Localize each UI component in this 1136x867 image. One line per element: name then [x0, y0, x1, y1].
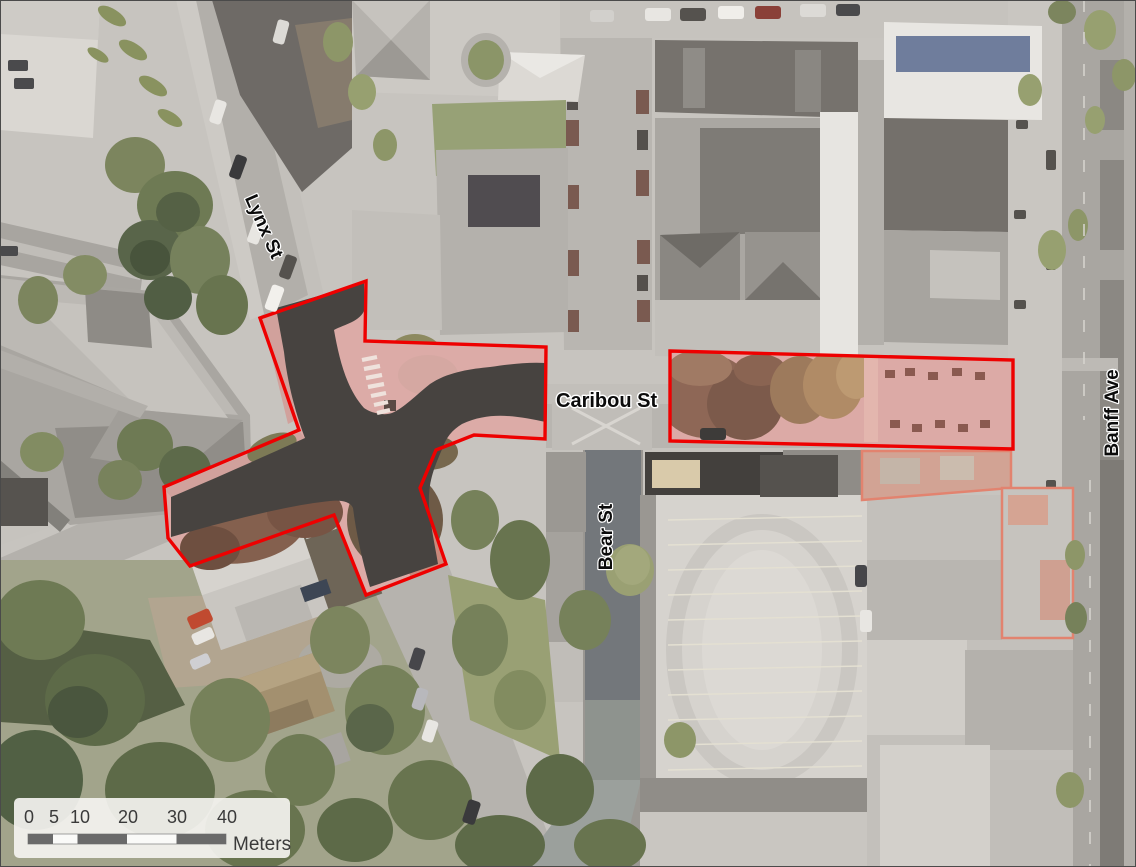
svg-text:Banff Ave: Banff Ave: [1102, 369, 1123, 456]
svg-text:Meters: Meters: [233, 834, 291, 855]
svg-text:Bear St: Bear St: [596, 503, 617, 570]
svg-text:0: 0: [24, 807, 34, 827]
svg-text:40: 40: [217, 807, 237, 827]
svg-text:30: 30: [167, 807, 187, 827]
svg-text:5: 5: [49, 807, 59, 827]
svg-text:20: 20: [118, 807, 138, 827]
svg-text:Caribou St: Caribou St: [556, 390, 657, 412]
svg-text:10: 10: [70, 807, 90, 827]
